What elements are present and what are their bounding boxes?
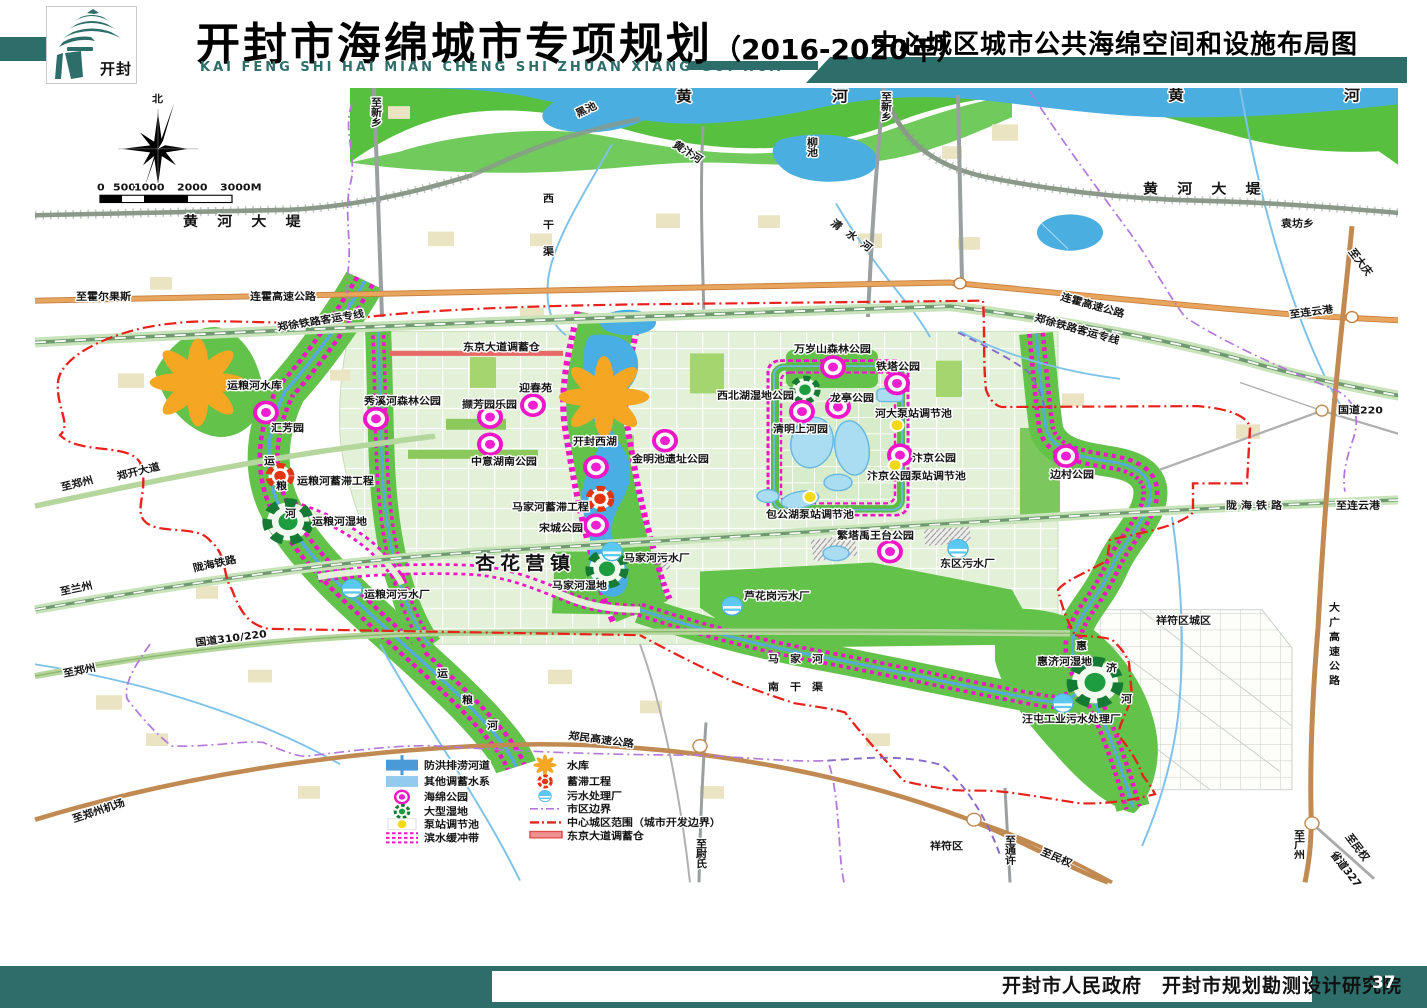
legend-label: 水库 — [566, 759, 590, 771]
svg-text:运: 运 — [264, 456, 276, 467]
logo-seal-text: 开封 — [100, 58, 132, 79]
svg-text:柳池: 柳池 — [806, 136, 819, 157]
legend-icon-dongjing-storage — [530, 831, 562, 837]
pump-icon-bianjing — [889, 459, 902, 471]
svg-text:运粮河水库: 运粮河水库 — [227, 379, 282, 391]
svg-text:河: 河 — [487, 720, 499, 731]
svg-text:至新乡: 至新乡 — [880, 92, 893, 122]
legend-icon-wetland — [395, 805, 409, 817]
svg-text:黄 河 大 堤: 黄 河 大 堤 — [183, 213, 308, 230]
svg-text:粮: 粮 — [462, 694, 474, 706]
svg-text:包公湖泵站调节池: 包公湖泵站调节池 — [766, 508, 854, 520]
svg-text:黄 河: 黄 河 — [1168, 88, 1427, 105]
sponge-park-icon-tieta — [886, 373, 908, 393]
svg-text:连霍高速公路: 连霍高速公路 — [250, 290, 316, 302]
svg-text:黄 河: 黄 河 — [676, 88, 910, 105]
sponge-park-icon-fanta — [879, 542, 901, 562]
sponge-park-icon-songcheng — [585, 515, 607, 535]
sewage-icon-wangtun — [1053, 694, 1073, 712]
svg-text:杏花营镇: 杏花营镇 — [474, 553, 575, 575]
legend-label: 大型湿地 — [424, 806, 468, 818]
svg-text:至广州: 至广州 — [1293, 830, 1306, 861]
svg-text:汴京公园: 汴京公园 — [912, 452, 956, 464]
detention-icon-majiahe — [589, 488, 612, 509]
sponge-park-icon-biancun — [1055, 446, 1077, 466]
svg-text:至尉氏: 至尉氏 — [695, 839, 708, 870]
svg-text:撷芳园乐园: 撷芳园乐园 — [462, 398, 517, 410]
svg-text:国道220: 国道220 — [1338, 404, 1383, 416]
svg-text:金明池遗址公园: 金明池遗址公园 — [631, 453, 709, 465]
sewage-icon-majiahe — [602, 542, 622, 560]
svg-text:汴京公园泵站调节池: 汴京公园泵站调节池 — [867, 470, 966, 482]
legend-label: 滨水缓冲带 — [424, 832, 479, 844]
legend-label: 海绵公园 — [424, 791, 468, 803]
pump-icon-baogonghu — [804, 491, 817, 503]
sponge-park-icon-yingchunyuan — [522, 395, 544, 415]
svg-text:边村公园: 边村公园 — [1049, 468, 1094, 480]
svg-text:至霍尔果斯: 至霍尔果斯 — [76, 290, 131, 302]
svg-text:粮: 粮 — [276, 480, 288, 492]
legend-icon-detention — [539, 776, 551, 787]
sponge-park-icon-zhongyihu — [479, 434, 501, 454]
svg-text:芦花岗污水厂: 芦花岗污水厂 — [744, 590, 810, 602]
svg-text:马家河蓄滞工程: 马家河蓄滞工程 — [512, 501, 589, 513]
pump-icon-heda — [891, 419, 904, 431]
svg-text:东区污水厂: 东区污水厂 — [940, 557, 995, 569]
svg-text:济: 济 — [1106, 662, 1118, 674]
map-subtitle: 中心城区城市公共海绵空间和设施布局图 — [872, 24, 1358, 61]
svg-text:运粮河蓄滞工程: 运粮河蓄滞工程 — [297, 475, 374, 487]
svg-text:迎春苑: 迎春苑 — [519, 382, 552, 394]
sewage-icon-yunliang — [342, 580, 362, 598]
svg-text:1000: 1000 — [134, 182, 165, 193]
legend-label: 蓄滞工程 — [567, 776, 611, 788]
svg-text:祥符区城区: 祥符区城区 — [1156, 615, 1211, 627]
legend-label: 泵站调节池 — [424, 818, 479, 830]
svg-text:黄 河 大 堤: 黄 河 大 堤 — [1143, 180, 1268, 197]
svg-text:西北湖湿地公园: 西北湖湿地公园 — [717, 389, 794, 401]
svg-text:开封西湖: 开封西湖 — [573, 436, 617, 448]
svg-text:河大泵站调节池: 河大泵站调节池 — [875, 408, 952, 420]
svg-text:汇芳园: 汇芳园 — [271, 422, 304, 434]
legend-label: 其他调蓄水系 — [424, 776, 490, 788]
svg-text:陇海铁路: 陇海铁路 — [1226, 499, 1286, 511]
svg-text:2000: 2000 — [177, 182, 208, 193]
legend-swatch-other-water — [386, 776, 418, 787]
svg-text:马家河污水厂: 马家河污水厂 — [624, 552, 690, 564]
legend-label: 防洪排涝河道 — [424, 759, 490, 771]
legend-icon-pump — [397, 819, 407, 828]
sponge-park-icon-jinmingchi — [654, 431, 676, 451]
sewage-icon-luhuagang — [722, 597, 742, 615]
sponge-park-icon-qingming — [791, 402, 813, 422]
svg-text:河: 河 — [1121, 694, 1133, 705]
legend-label: 东京大道调蓄仓 — [567, 830, 644, 842]
svg-text:运: 运 — [437, 668, 449, 679]
svg-text:汪屯工业污水处理厂: 汪屯工业污水处理厂 — [1022, 713, 1121, 725]
sponge-park-icon-wansuishan — [822, 357, 844, 377]
svg-text:运粮河湿地: 运粮河湿地 — [312, 516, 367, 528]
compass-north-label: 北 — [152, 93, 164, 105]
svg-text:繁塔禹王台公园: 繁塔禹王台公园 — [836, 529, 914, 541]
sewage-icon-dongqu — [948, 540, 968, 558]
planning-map-page: 开封 开封市海绵城市专项规划（2016-2020年） KAI FENG SHI … — [0, 0, 1427, 1008]
svg-text:0: 0 — [97, 182, 105, 193]
reservoir-icon-westlake — [559, 356, 649, 438]
svg-text:马家河湿地: 马家河湿地 — [552, 579, 607, 591]
legend-label: 中心城区范围（城市开发边界） — [567, 817, 721, 829]
svg-text:惠济河湿地: 惠济河湿地 — [1037, 656, 1092, 668]
wetland-icon-xibeihu — [792, 378, 817, 401]
svg-text:惠: 惠 — [1076, 640, 1088, 652]
page-number: 37 — [1372, 973, 1396, 993]
svg-text:西干渠: 西干渠 — [542, 193, 555, 272]
svg-text:袁坊乡: 袁坊乡 — [1280, 218, 1314, 230]
svg-text:3000M: 3000M — [220, 182, 262, 193]
svg-text:至通许: 至通许 — [1004, 835, 1017, 866]
svg-text:清明上河园: 清明上河园 — [773, 423, 828, 435]
svg-text:东京大道调蓄仓: 东京大道调蓄仓 — [463, 341, 540, 353]
header-teal-strip-left — [0, 37, 47, 61]
legend-icon-sewage — [539, 790, 551, 801]
svg-text:500: 500 — [113, 182, 136, 193]
svg-text:运粮河污水厂: 运粮河污水厂 — [364, 588, 430, 600]
title-pinyin: KAI FENG SHI HAI MIAN CHENG SHI ZHUAN XI… — [200, 60, 783, 75]
map-canvas[interactable]: 北 0 500 1000 2000 3000M — [0, 88, 1427, 966]
svg-text:至新乡: 至新乡 — [370, 97, 383, 127]
legend-icon-sponge-park — [395, 791, 409, 803]
footer-credit-text: 开封市人民政府 开封市规划勘测设计研究院 — [1002, 971, 1402, 998]
legend-icon-reservoir — [533, 755, 556, 776]
sponge-park-icon-huifangyuan — [255, 402, 277, 422]
legend-label: 污水处理厂 — [567, 790, 622, 802]
sponge-park-icon-xiuxihe — [365, 409, 387, 429]
svg-text:马 家 河: 马 家 河 — [768, 653, 823, 665]
svg-text:万岁山森林公园: 万岁山森林公园 — [793, 343, 871, 355]
svg-text:祥符区: 祥符区 — [930, 840, 963, 852]
svg-text:南 干 渠: 南 干 渠 — [768, 681, 823, 693]
kaifeng-logo: 开封 — [46, 6, 137, 84]
sponge-park-icon-westlake — [585, 457, 607, 477]
svg-text:铁塔公园: 铁塔公园 — [876, 360, 920, 372]
svg-text:中意湖南公园: 中意湖南公园 — [471, 456, 537, 468]
legend-label: 市区边界 — [567, 803, 611, 815]
svg-text:河: 河 — [285, 508, 297, 519]
svg-text:宋城公园: 宋城公园 — [538, 522, 583, 534]
svg-text:大广高速公路: 大广高速公路 — [1328, 602, 1341, 690]
svg-text:龙亭公园: 龙亭公园 — [829, 392, 874, 404]
svg-text:至连云港: 至连云港 — [1336, 499, 1380, 511]
svg-text:秀溪河森林公园: 秀溪河森林公园 — [363, 395, 441, 407]
right-margin — [1398, 88, 1427, 886]
header: 开封 开封市海绵城市专项规划（2016-2020年） KAI FENG SHI … — [0, 0, 1427, 88]
